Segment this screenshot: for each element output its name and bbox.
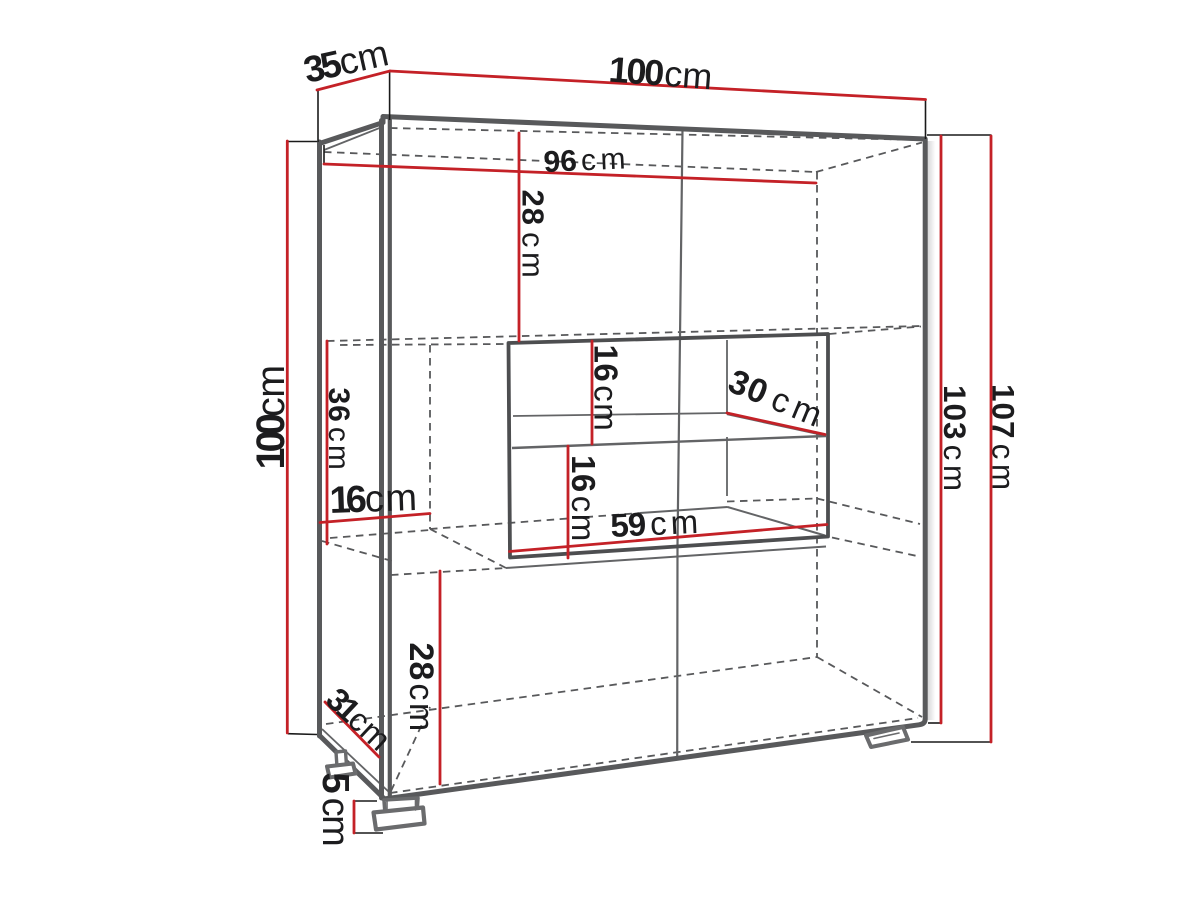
svg-text:103cm: 103cm: [937, 385, 973, 496]
svg-text:28cm: 28cm: [402, 643, 440, 734]
svg-text:16cm: 16cm: [565, 455, 602, 543]
svg-text:5cm: 5cm: [314, 773, 356, 846]
svg-text:100cm: 100cm: [607, 49, 713, 98]
svg-text:36cm: 36cm: [322, 388, 355, 473]
svg-text:107cm: 107cm: [986, 384, 1022, 495]
svg-text:16cm: 16cm: [588, 345, 625, 433]
svg-text:96cm: 96cm: [543, 142, 631, 179]
svg-text:100cm: 100cm: [249, 365, 293, 469]
svg-text:16cm: 16cm: [329, 477, 419, 522]
svg-text:59cm: 59cm: [610, 503, 703, 544]
svg-text:28cm: 28cm: [516, 190, 551, 283]
